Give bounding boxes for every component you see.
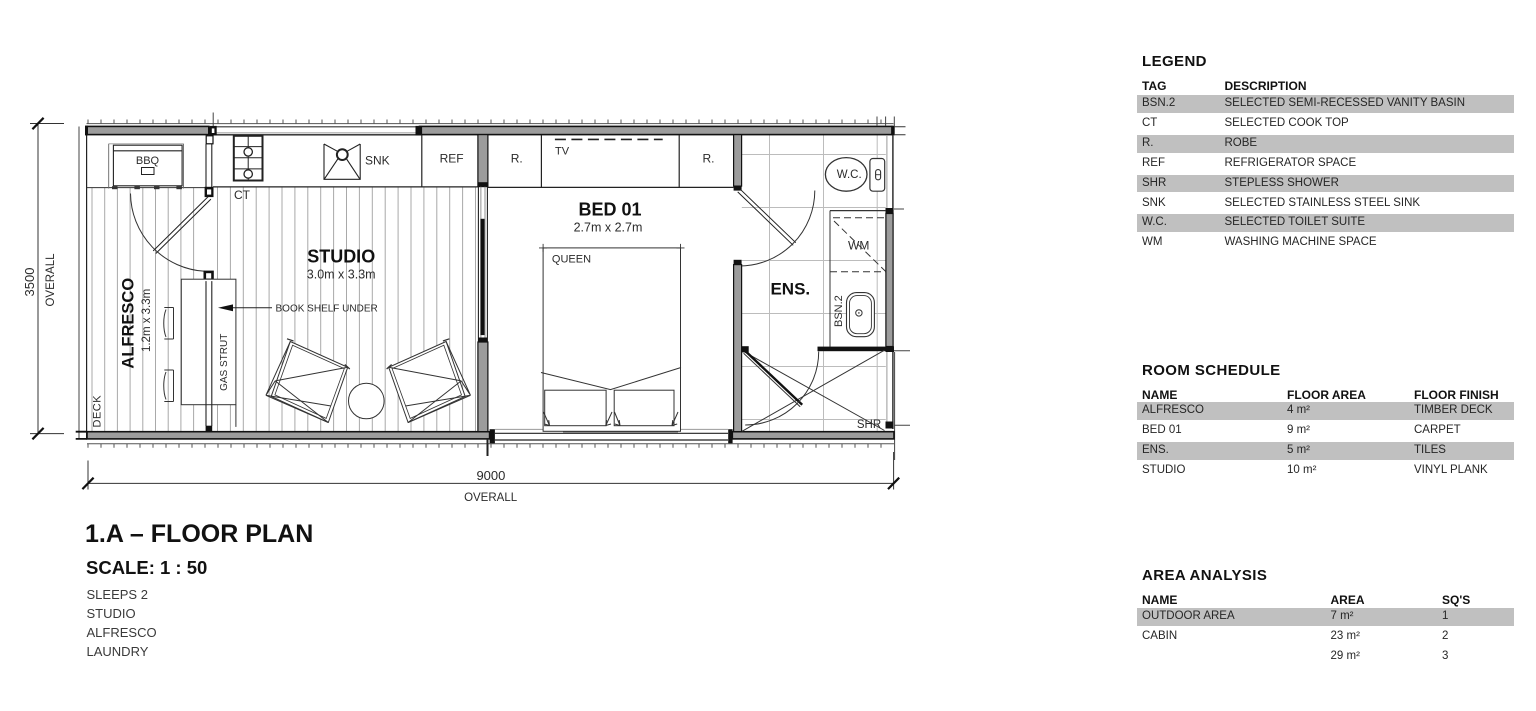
- svg-text:DECK: DECK: [91, 395, 103, 428]
- svg-text:BED 01: BED 01: [578, 199, 641, 219]
- svg-text:CT: CT: [234, 188, 251, 202]
- svg-text:W.C.: W.C.: [837, 169, 862, 181]
- svg-text:R.: R.: [703, 151, 715, 165]
- svg-text:WM: WM: [848, 239, 869, 253]
- svg-text:OVERALL: OVERALL: [464, 492, 518, 504]
- svg-text:9000: 9000: [476, 468, 505, 483]
- svg-text:GAS STRUT: GAS STRUT: [219, 334, 230, 391]
- svg-text:SHR: SHR: [857, 419, 881, 431]
- svg-text:3.0m x 3.3m: 3.0m x 3.3m: [307, 268, 376, 282]
- svg-text:ALFRESCO: ALFRESCO: [120, 278, 138, 369]
- svg-text:3500: 3500: [22, 268, 37, 297]
- svg-text:STUDIO: STUDIO: [307, 246, 375, 266]
- svg-text:REF: REF: [440, 152, 464, 166]
- svg-text:BSN.2: BSN.2: [833, 295, 845, 327]
- svg-text:SNK: SNK: [365, 153, 390, 167]
- svg-text:BBQ: BBQ: [136, 155, 160, 167]
- svg-text:2.7m x 2.7m: 2.7m x 2.7m: [574, 221, 643, 235]
- svg-text:TV: TV: [555, 146, 570, 158]
- svg-text:OVERALL: OVERALL: [45, 253, 57, 307]
- svg-text:1.2m x 3.3m: 1.2m x 3.3m: [141, 289, 153, 352]
- svg-text:R.: R.: [511, 151, 523, 165]
- svg-text:BOOK SHELF UNDER: BOOK SHELF UNDER: [276, 303, 378, 314]
- svg-text:QUEEN: QUEEN: [552, 254, 591, 266]
- svg-text:ENS.: ENS.: [770, 279, 810, 298]
